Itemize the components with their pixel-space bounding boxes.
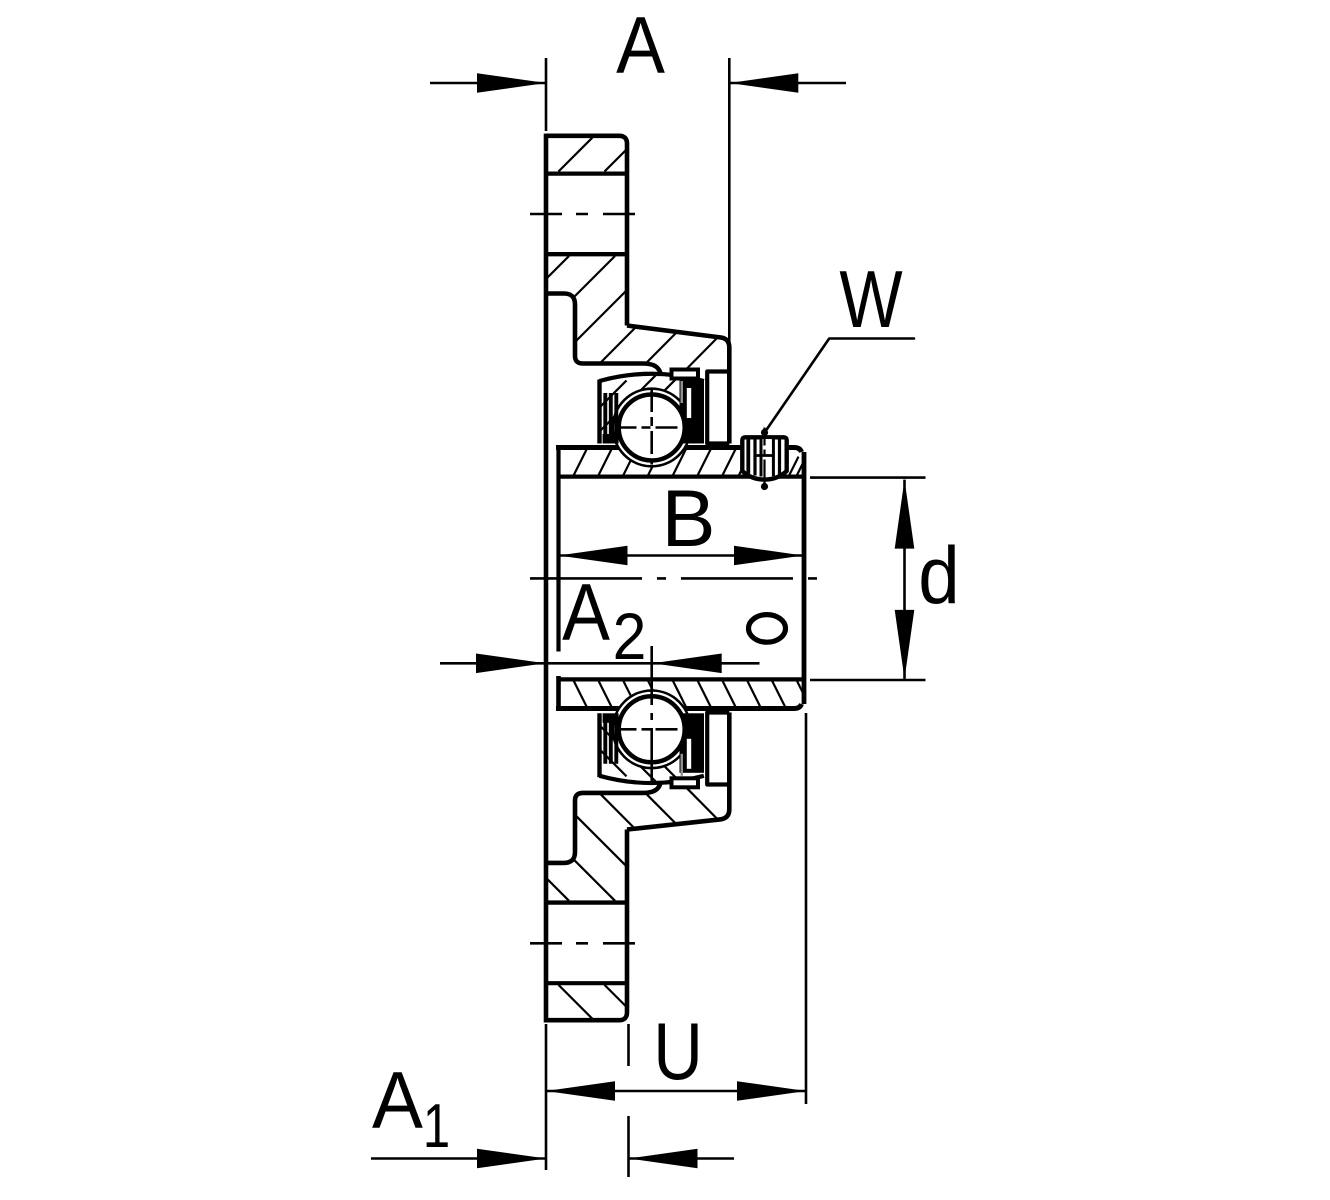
svg-text:B: B — [661, 474, 715, 564]
svg-text:A: A — [372, 1055, 423, 1146]
svg-text:A: A — [562, 568, 610, 658]
svg-text:2: 2 — [613, 601, 647, 674]
svg-text:d: d — [918, 531, 959, 621]
svg-text:A: A — [616, 1, 665, 91]
svg-text:1: 1 — [423, 1090, 450, 1160]
svg-text:W: W — [839, 254, 902, 344]
svg-text:U: U — [653, 1006, 703, 1097]
